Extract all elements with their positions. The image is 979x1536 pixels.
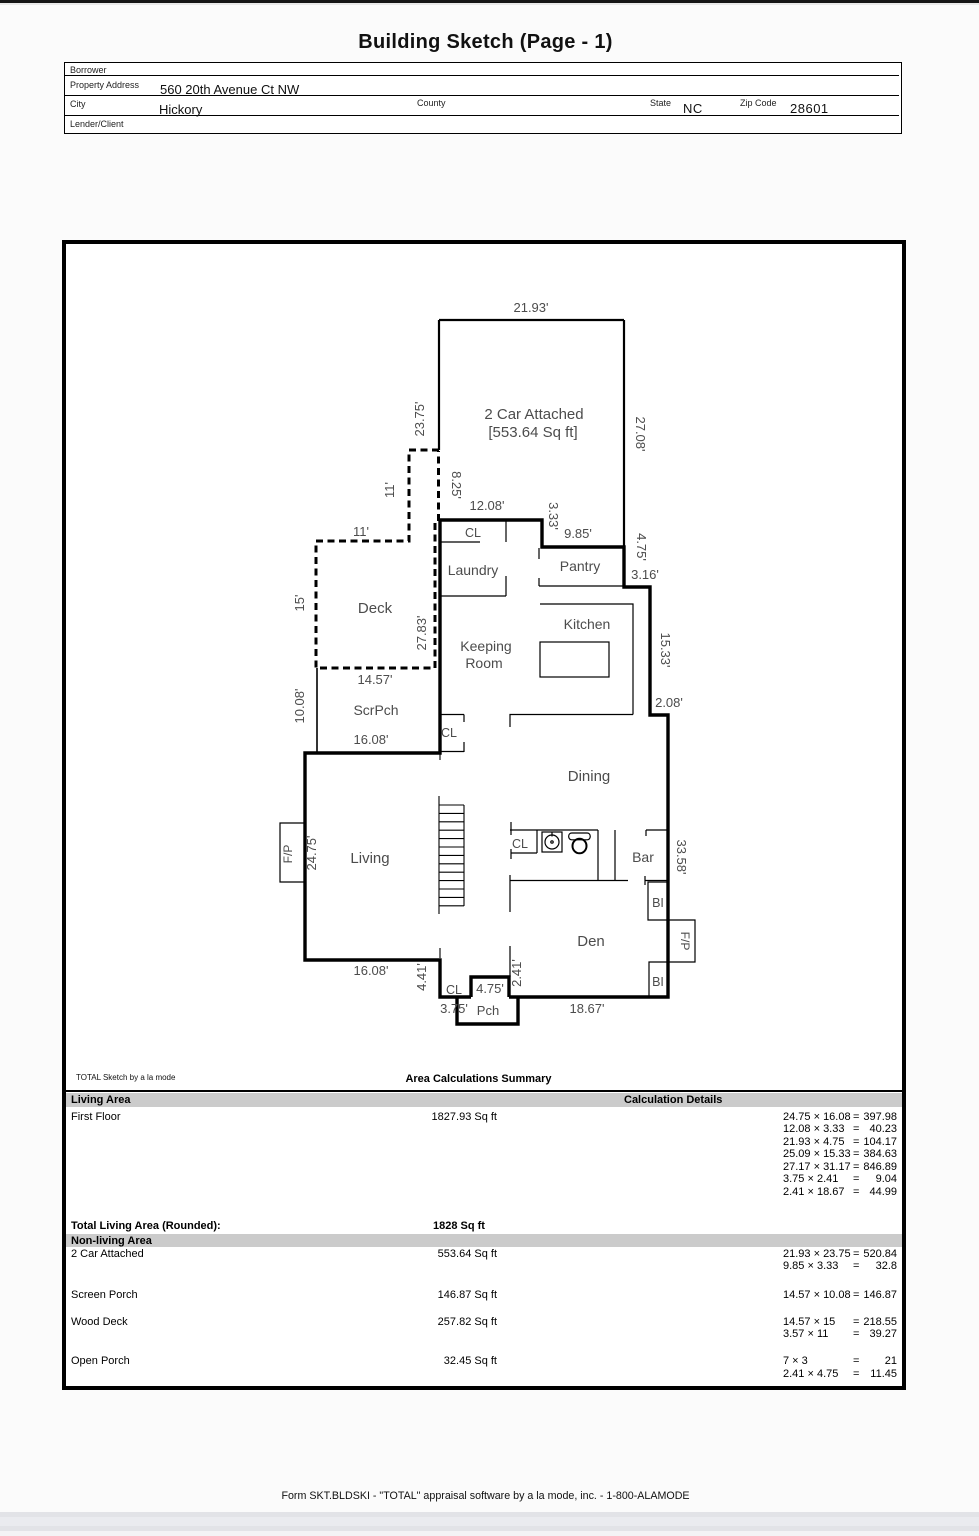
svg-text:23.75': 23.75' [412, 401, 427, 436]
svg-text:14.57': 14.57' [357, 672, 392, 687]
svg-text:F/P: F/P [678, 932, 692, 951]
svg-text:10.08': 10.08' [292, 688, 307, 723]
svg-text:CL: CL [465, 526, 481, 540]
svg-text:2.41': 2.41' [509, 959, 524, 987]
svg-text:21.93': 21.93' [513, 300, 548, 315]
svg-text:CL: CL [446, 983, 462, 997]
svg-text:Laundry: Laundry [448, 562, 499, 578]
svg-text:Pantry: Pantry [560, 558, 600, 574]
svg-text:9.85': 9.85' [564, 526, 592, 541]
svg-text:16.08': 16.08' [353, 732, 388, 747]
svg-text:F/P: F/P [281, 845, 295, 864]
svg-text:[553.64 Sq ft]: [553.64 Sq ft] [488, 424, 577, 441]
svg-text:ScrPch: ScrPch [353, 702, 398, 718]
svg-text:4.75': 4.75' [634, 533, 649, 561]
svg-text:24.75': 24.75' [304, 835, 319, 870]
svg-text:Living: Living [350, 850, 389, 867]
svg-text:3.75': 3.75' [440, 1001, 468, 1016]
svg-text:11': 11' [353, 524, 369, 539]
svg-text:4.41': 4.41' [414, 963, 429, 991]
svg-text:2 Car Attached: 2 Car Attached [484, 406, 583, 423]
svg-text:Room: Room [465, 655, 502, 671]
svg-text:12.08': 12.08' [469, 498, 504, 513]
svg-text:BI: BI [652, 896, 664, 910]
svg-text:3.16': 3.16' [631, 567, 659, 582]
svg-text:CL: CL [441, 726, 457, 740]
svg-text:Dining: Dining [568, 768, 611, 785]
svg-text:27.83': 27.83' [414, 615, 429, 650]
svg-text:4.75': 4.75' [476, 981, 504, 996]
svg-text:27.08': 27.08' [633, 416, 648, 451]
svg-text:Den: Den [577, 933, 605, 950]
svg-text:Keeping: Keeping [460, 638, 511, 654]
svg-text:16.08': 16.08' [353, 963, 388, 978]
svg-text:Deck: Deck [358, 600, 393, 617]
svg-text:2.08': 2.08' [655, 695, 683, 710]
svg-text:33.58': 33.58' [674, 839, 689, 874]
svg-text:18.67': 18.67' [569, 1001, 604, 1016]
svg-text:11': 11' [382, 482, 397, 498]
svg-text:15': 15' [292, 595, 307, 612]
svg-text:15.33': 15.33' [658, 632, 673, 667]
svg-text:Bar: Bar [632, 849, 654, 865]
svg-text:CL: CL [512, 837, 528, 851]
svg-text:Pch: Pch [477, 1003, 499, 1018]
svg-text:8.25': 8.25' [449, 471, 464, 499]
svg-text:Kitchen: Kitchen [564, 616, 611, 632]
svg-text:3.33': 3.33' [546, 502, 561, 530]
svg-text:BI: BI [652, 975, 664, 989]
